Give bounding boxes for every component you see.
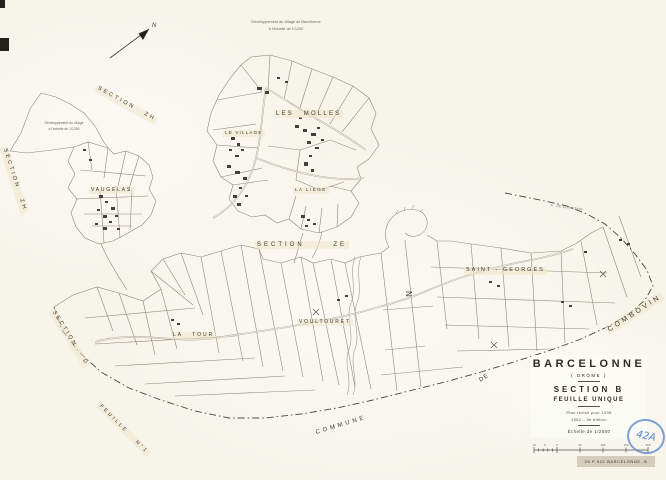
place-label-voultouret: VOULTOURET [297,319,353,326]
cadastral-map-sheet: N [0,0,666,480]
place-label-saint-georges: SAINT - GEORGES [464,267,547,275]
divider [578,406,600,407]
blue-annotation-text: 42A [635,429,656,444]
place-label-la-tour: LA TOUR [171,332,216,339]
place-label-les-molles: LES MOLLES [274,110,343,118]
map-inset-note-left: Développement du village à l'échelle de … [38,120,90,132]
section-label-ze: SECTION ZE [255,241,349,249]
feuille-title: FEUILLE UNIQUE [531,397,647,403]
departement-subtitle: ( DRÔME ) [531,373,647,378]
svg-text:0: 0 [556,443,558,447]
village-cluster [207,55,379,263]
divider [578,381,600,382]
note-line: à l'échelle de 1/1250 [38,126,90,132]
place-label-vaugelas: VAUGELAS [89,187,134,194]
revision-note-2: 1952 – 3e édition [531,417,647,422]
place-label-le-village: LE VILLAGE [223,130,265,137]
svg-text:100: 100 [600,443,605,447]
note-line: Développement du village de Barcelonne [236,19,336,26]
commune-title: BARCELONNE [531,358,647,370]
revision-note-1: Plan révisé pour 1936 [531,410,647,415]
divider [578,425,600,426]
map-inset-note-top: Développement du village de Barcelonne à… [236,19,336,33]
archive-reference-stamp: 26 P 522 BARCELONNE. B [577,456,655,467]
place-label-la-liege: LA LIÈGE [293,187,329,194]
note-line: à l'échelle de 1/1250 [236,26,336,33]
north-arrow: N [110,23,157,58]
svg-text:10: 10 [532,443,536,447]
north-letter: N [152,23,157,29]
svg-text:5: 5 [544,443,546,447]
svg-text:50: 50 [578,443,582,447]
section-title: SECTION B [531,385,647,394]
rotated-n-letter: N [404,291,412,297]
